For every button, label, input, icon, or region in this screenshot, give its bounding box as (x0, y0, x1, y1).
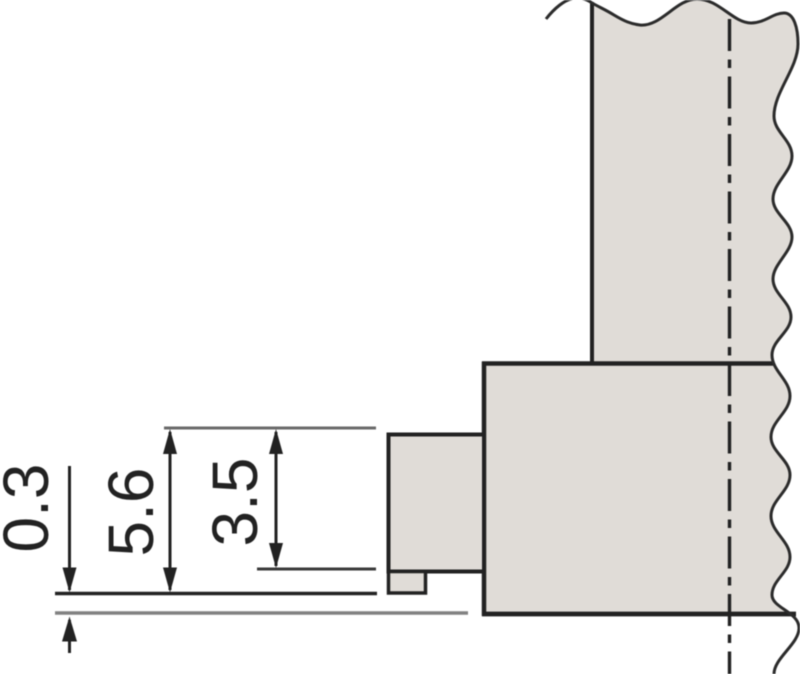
svg-text:0.3: 0.3 (0, 464, 62, 553)
svg-text:5.6: 5.6 (95, 468, 167, 557)
svg-text:3.5: 3.5 (199, 458, 271, 547)
